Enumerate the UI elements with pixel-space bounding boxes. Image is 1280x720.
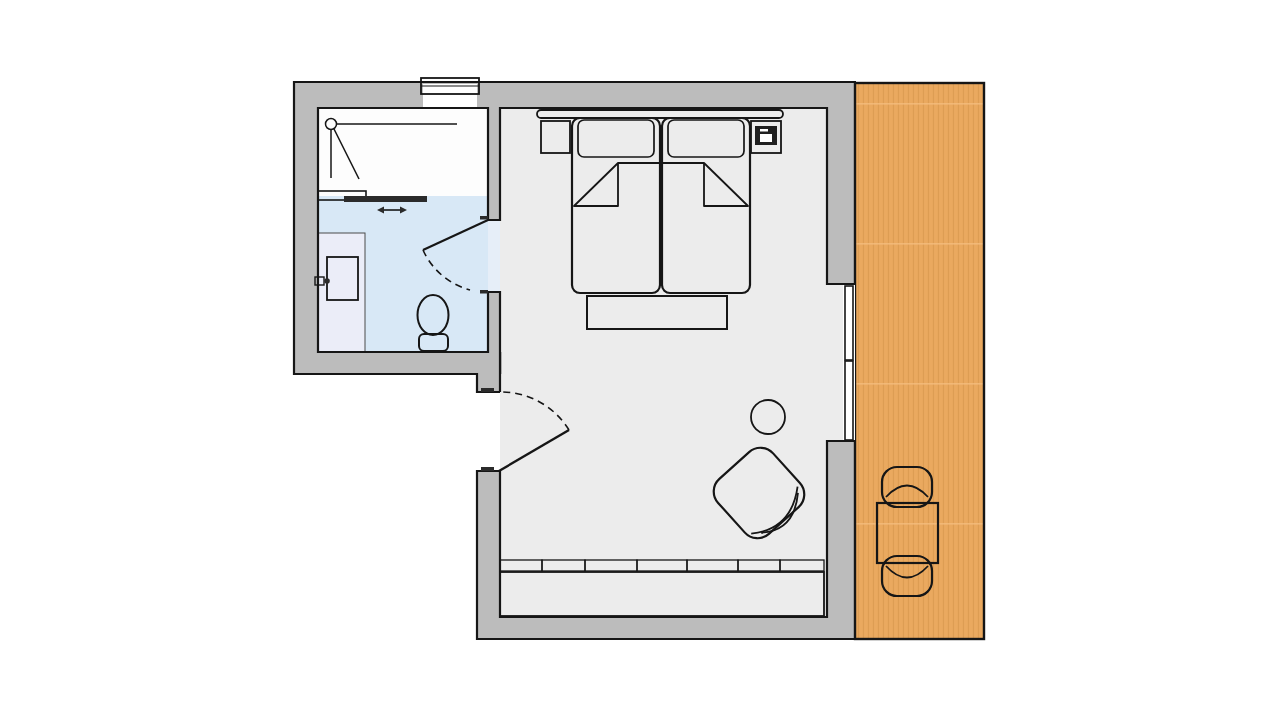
telephone-icon (755, 126, 777, 145)
wall-bathroom-bottom (294, 352, 502, 374)
bathroom-window-opening (423, 84, 477, 107)
bathroom-door-stop-top (480, 216, 488, 220)
floor-plan-drawing (0, 0, 1280, 720)
wall-top (294, 82, 856, 108)
shower-floor (318, 108, 488, 196)
faucet-icon (324, 278, 330, 284)
wall-right-lower (827, 441, 856, 639)
entrance-door-stop-top (481, 388, 494, 392)
wall-divider-lower (488, 292, 500, 352)
bedroom-floor (488, 100, 855, 620)
wall-bottom (477, 617, 856, 639)
entrance-threshold (477, 392, 500, 471)
wall-right-upper (827, 83, 856, 284)
bathroom-threshold (488, 218, 500, 292)
wall-left (294, 82, 318, 374)
wall-divider-upper (488, 108, 500, 220)
sliding-door-leaf (344, 196, 427, 202)
entrance-door-stop-bottom (481, 467, 494, 471)
telephone-detail-2 (760, 129, 768, 132)
telephone-detail (760, 134, 772, 142)
floor-plan-page (0, 0, 1280, 720)
wall-left-lower (477, 471, 500, 639)
terrace-window-front (843, 285, 855, 440)
bathroom-door-stop-bottom (480, 290, 488, 294)
